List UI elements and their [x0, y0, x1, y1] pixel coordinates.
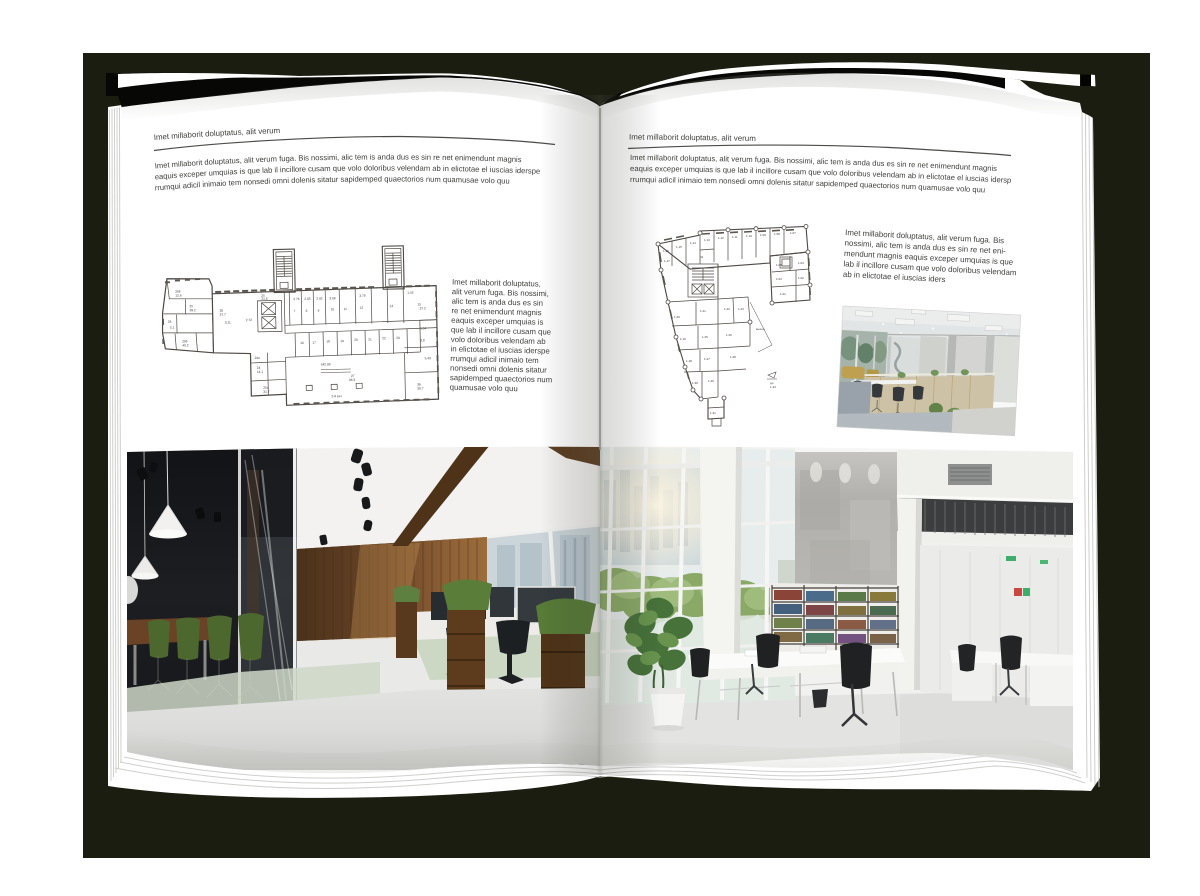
svg-text:5.43: 5.43: [425, 356, 432, 360]
svg-text:1.07: 1.07: [790, 231, 796, 235]
svg-text:3.79: 3.79: [359, 294, 366, 298]
svg-text:12.6: 12.6: [175, 293, 182, 297]
svg-text:3.8: 3.8: [420, 338, 425, 342]
svg-text:17: 17: [312, 341, 316, 345]
svg-text:14: 14: [389, 304, 393, 308]
svg-text:1.09: 1.09: [760, 233, 766, 237]
svg-text:2-й зач: 2-й зач: [331, 394, 342, 398]
svg-text:2.76: 2.76: [293, 297, 300, 301]
svg-text:26: 26: [168, 320, 172, 324]
svg-text:1.10: 1.10: [746, 234, 752, 238]
svg-text:14.1: 14.1: [257, 370, 264, 374]
svg-text:24a: 24a: [255, 356, 261, 360]
svg-text:1.18: 1.18: [686, 359, 692, 363]
svg-text:16: 16: [300, 341, 304, 345]
svg-text:1.25: 1.25: [702, 335, 708, 339]
svg-text:5.1: 5.1: [170, 326, 175, 330]
svg-text:1.08: 1.08: [774, 232, 780, 236]
svg-text:41: 41: [700, 255, 704, 259]
svg-text:1.02: 1.02: [798, 276, 804, 280]
svg-text:1.19: 1.19: [680, 337, 686, 341]
svg-text:8: 8: [306, 309, 308, 313]
svg-text:1.23: 1.23: [738, 307, 744, 311]
svg-text:1.27: 1.27: [704, 357, 710, 361]
svg-text:37.7: 37.7: [220, 313, 227, 317]
svg-text:quamusae volo quu: quamusae volo quu: [450, 383, 518, 394]
svg-text:1.03: 1.03: [776, 277, 782, 281]
svg-text:1.26: 1.26: [726, 333, 732, 337]
svg-text:86.3: 86.3: [349, 378, 356, 382]
svg-text:37.2: 37.2: [420, 306, 427, 310]
svg-text:20: 20: [354, 338, 358, 342]
svg-text:1.12: 1.12: [718, 236, 724, 240]
svg-text:1.05: 1.05: [776, 263, 782, 267]
svg-text:1.15: 1.15: [676, 245, 682, 249]
svg-text:1.28: 1.28: [730, 355, 736, 359]
svg-text:1.11: 1.11: [732, 235, 738, 239]
svg-text:19: 19: [340, 339, 344, 343]
svg-text:1.20: 1.20: [674, 315, 680, 319]
svg-text:1.34: 1.34: [770, 385, 776, 389]
svg-text:31.7: 31.7: [263, 390, 270, 394]
svg-text:9: 9: [318, 309, 320, 313]
svg-text:22: 22: [382, 336, 386, 340]
svg-text:11: 11: [344, 307, 348, 311]
svg-text:1.29: 1.29: [708, 379, 714, 383]
svg-text:1.14: 1.14: [690, 241, 696, 245]
svg-text:23: 23: [396, 336, 400, 340]
svg-text:21.8: 21.8: [261, 297, 268, 301]
svg-text:1.30: 1.30: [692, 381, 698, 385]
svg-text:выход: выход: [756, 327, 765, 331]
svg-text:10: 10: [331, 307, 335, 311]
svg-text:3.11: 3.11: [225, 320, 231, 324]
svg-text:2.85: 2.85: [304, 297, 311, 301]
svg-text:21: 21: [368, 337, 372, 341]
svg-text:2.72: 2.72: [246, 318, 253, 322]
svg-text:1.45: 1.45: [407, 291, 414, 295]
svg-text:39.2: 39.2: [190, 308, 197, 312]
svg-text:542.88: 542.88: [321, 362, 331, 366]
svg-text:3.09: 3.09: [329, 296, 336, 300]
svg-text:1.31: 1.31: [710, 411, 716, 415]
svg-text:12: 12: [360, 306, 364, 310]
svg-text:1.01: 1.01: [780, 292, 786, 296]
svg-text:5.54: 5.54: [420, 326, 427, 330]
svg-text:2.92: 2.92: [316, 297, 323, 301]
svg-text:1.04: 1.04: [798, 261, 804, 265]
svg-text:1.21: 1.21: [700, 309, 706, 313]
svg-text:18: 18: [326, 339, 330, 343]
svg-text:7: 7: [294, 309, 296, 313]
svg-text:1.17: 1.17: [664, 259, 670, 263]
svg-text:40.2: 40.2: [182, 343, 189, 347]
svg-text:1.16: 1.16: [663, 249, 669, 253]
svg-text:30.7: 30.7: [417, 386, 424, 390]
svg-text:1.22: 1.22: [724, 307, 730, 311]
svg-text:1.13: 1.13: [704, 238, 710, 242]
